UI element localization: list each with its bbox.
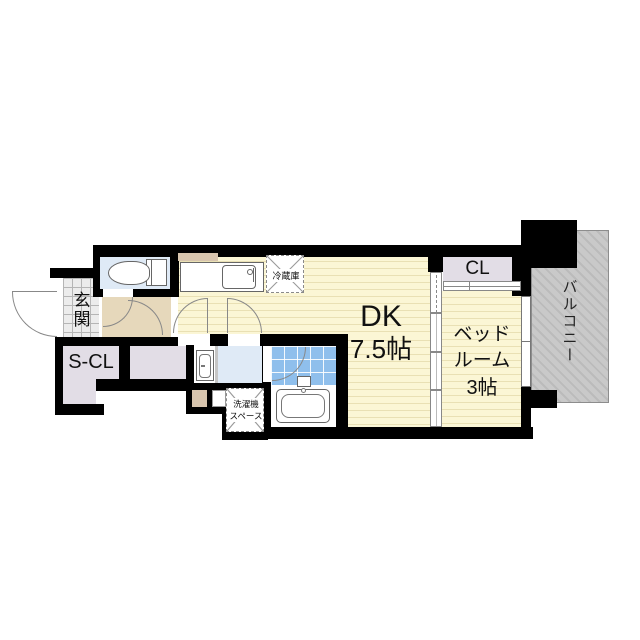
window-mullion xyxy=(522,341,530,342)
doorway-washroom xyxy=(228,334,260,345)
bedroom-balcony-window xyxy=(521,296,531,387)
closet-sliding-door-tick xyxy=(469,282,470,290)
washer-label-text1: 洗濯機 xyxy=(233,398,259,410)
bathtub xyxy=(276,389,330,423)
kitchen-faucet-pipe xyxy=(253,268,254,282)
entrance-door-arc xyxy=(12,292,57,337)
wall-scl-mid xyxy=(119,342,130,380)
wall-slider-stub xyxy=(428,245,443,272)
bedroom-size-label: 3帖 xyxy=(442,374,522,402)
entrance-label: 玄関 xyxy=(66,285,94,335)
washer-label-text2: スペース xyxy=(230,410,263,422)
entrance-door-leaf xyxy=(12,291,57,292)
washer-label-line1: 洗濯機 xyxy=(227,398,265,409)
toilet-tank-line xyxy=(151,260,152,285)
bedroom-label-block: ベッド ルーム 3帖 xyxy=(442,322,522,414)
utility-white-square xyxy=(212,390,226,407)
wall-toilet-bottom-a xyxy=(93,289,103,297)
bedroom-label-line1: ベッド xyxy=(442,322,522,348)
shoe-closet-label-text: S-CL xyxy=(68,351,114,374)
wall-entrance-top xyxy=(50,268,99,278)
balcony-label: バルコニー xyxy=(555,243,583,399)
floor-plan: 冷蔵庫 洗濯機 スペース 玄関 S-CL CL DK 7.5帖 ベッド ル xyxy=(0,0,640,640)
shoe-closet-floor-ext xyxy=(63,380,96,404)
dk-size-label: 7.5帖 xyxy=(330,334,432,364)
bedroom-label-line2: ルーム xyxy=(442,348,522,374)
doorway-bathroom xyxy=(263,346,271,382)
closet-label-text: CL xyxy=(465,258,489,280)
partition-track-dashed xyxy=(436,275,437,313)
wall-bottom xyxy=(262,427,533,439)
washbasin-faucet-icon xyxy=(201,365,205,367)
wall-balcony-stub xyxy=(523,390,557,408)
bathroom-step xyxy=(297,376,311,387)
kitchen-shelf xyxy=(178,253,218,261)
refrigerator-label-text: 冷蔵庫 xyxy=(272,269,299,282)
utility-wood-square xyxy=(192,390,207,407)
refrigerator-space: 冷蔵庫 xyxy=(266,255,304,293)
wall-scl-bottom xyxy=(55,404,104,415)
entrance-label-text: 玄関 xyxy=(68,291,93,329)
dk-label: DK xyxy=(330,300,432,334)
closet-sliding-door xyxy=(443,281,521,291)
closet-label: CL xyxy=(443,256,512,281)
balcony-label-text: バルコニー xyxy=(559,279,580,364)
washroom-floor xyxy=(218,346,262,385)
doorway-washbasin xyxy=(178,334,210,345)
partition-track-solid xyxy=(436,314,437,426)
washer-label-line2: スペース xyxy=(227,410,265,421)
wall-hall-scl xyxy=(55,337,178,346)
refrigerator-label: 冷蔵庫 xyxy=(267,269,305,281)
shoe-closet-label: S-CL xyxy=(63,349,119,375)
washbasin-door-leaf xyxy=(207,298,208,333)
washer-space: 洗濯機 スペース xyxy=(226,388,264,432)
toilet-bowl xyxy=(108,261,150,285)
washbasin-unit xyxy=(196,350,214,381)
wall-toilet-bottom-b xyxy=(133,289,179,297)
partition-tick-3 xyxy=(430,389,442,391)
storage-floor xyxy=(130,346,186,379)
wall-under-storage xyxy=(96,379,194,391)
wall-doorband-mid xyxy=(210,334,228,346)
bathtub-drain-icon xyxy=(301,388,306,393)
closet-sliding-door-rail xyxy=(444,286,520,287)
washroom-door-leaf xyxy=(227,298,228,333)
bathtub-inner xyxy=(281,394,325,418)
dk-label-block: DK 7.5帖 xyxy=(330,300,432,368)
